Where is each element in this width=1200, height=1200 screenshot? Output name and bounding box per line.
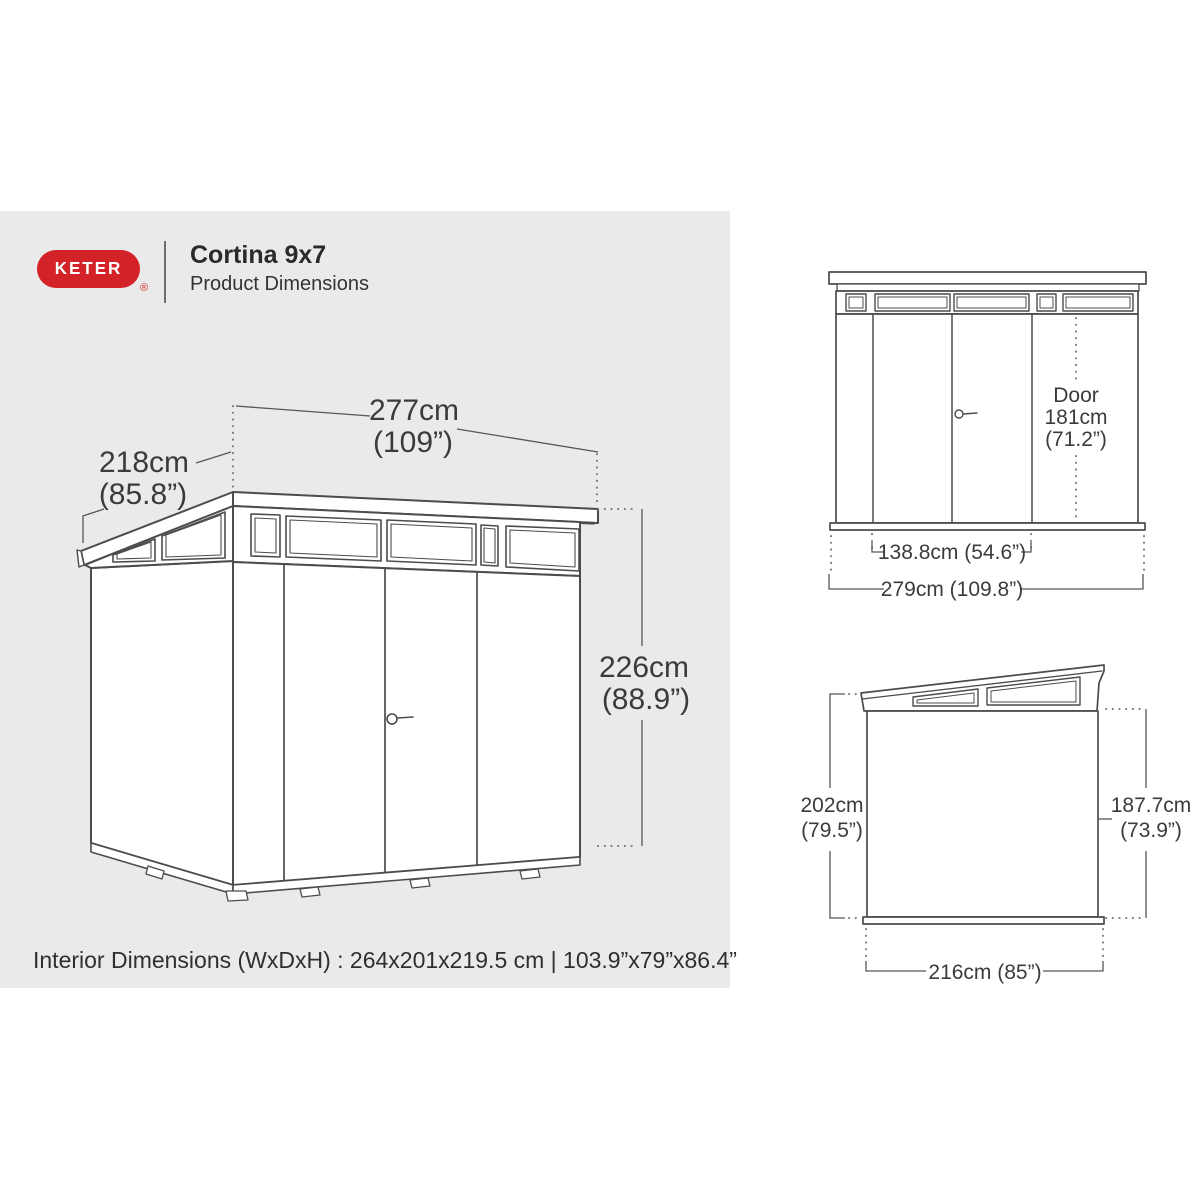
back-height-cm: 202cm — [800, 794, 863, 817]
back-height-in: (79.5”) — [801, 819, 863, 842]
back-height-dimension: 202cm (79.5”) — [800, 694, 863, 918]
product-dimensions-sheet: { "header": { "brand": "KETER", "registe… — [0, 0, 1200, 1200]
width-label-cm: 277cm — [369, 394, 459, 427]
brand-name: KETER — [55, 259, 123, 280]
inner-width-dimension: 138.8cm (54.6”) — [872, 534, 1031, 564]
width-dimension: 277cm (109”) — [233, 394, 598, 504]
side-width-dimension: 216cm (85”) — [866, 929, 1103, 984]
interior-dimensions-text: Interior Dimensions (WxDxH) : 264x201x21… — [33, 947, 737, 974]
side-elevation-drawing: 202cm (79.5”) 187.7cm (73.9”) 216cm (85”… — [785, 655, 1200, 995]
height-label-cm: 226cm — [599, 651, 689, 684]
front-height-in: (73.9”) — [1120, 819, 1182, 842]
depth-label-cm: 218cm — [99, 446, 189, 479]
height-label-in: (88.9”) — [602, 683, 690, 716]
total-width-label: 279cm (109.8”) — [881, 578, 1023, 601]
front-height-dimension: 187.7cm (73.9”) — [1098, 709, 1191, 918]
page-subtitle: Product Dimensions — [190, 273, 369, 296]
shed-illustration — [77, 492, 598, 901]
header-divider — [164, 241, 166, 303]
door-height-cm: 181cm — [1044, 406, 1107, 429]
door-height-in: (71.2”) — [1045, 428, 1107, 451]
base-bar — [830, 523, 1145, 530]
front-height-cm: 187.7cm — [1111, 794, 1192, 817]
inner-width-label: 138.8cm (54.6”) — [878, 541, 1026, 564]
depth-label-in: (85.8”) — [99, 478, 187, 511]
isometric-shed-drawing: 277cm (109”) 218cm (85.8”) 226cm (88.9”) — [70, 390, 715, 910]
height-dimension: 226cm (88.9”) — [598, 509, 690, 846]
width-label-in: (109”) — [373, 426, 453, 459]
page-title: Cortina 9x7 — [190, 241, 326, 270]
front-elevation-drawing: Door 181cm (71.2”) 138.8cm (54.6”) 279cm… — [800, 255, 1200, 610]
base-bar — [863, 917, 1104, 924]
registered-mark: ® — [140, 282, 148, 294]
side-width-label: 216cm (85”) — [928, 961, 1041, 984]
keter-logo: KETER — [37, 250, 140, 288]
door-label: Door — [1053, 384, 1099, 407]
side-elevation-shed — [861, 665, 1104, 924]
